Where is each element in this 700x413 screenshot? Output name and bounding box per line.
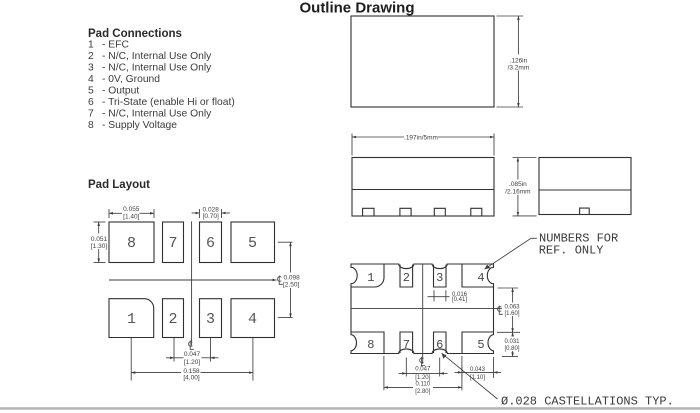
svg-text:0.055: 0.055 xyxy=(123,206,140,213)
svg-text:[1.40]: [1.40] xyxy=(123,213,139,220)
svg-text:2: 2 xyxy=(88,51,94,62)
svg-text:3: 3 xyxy=(436,271,443,285)
svg-text:0.063: 0.063 xyxy=(505,304,521,310)
svg-text:2: 2 xyxy=(168,311,177,328)
svg-text:[2.50]: [2.50] xyxy=(283,282,299,289)
svg-text:- EFC: - EFC xyxy=(102,40,129,51)
svg-text:8: 8 xyxy=(88,120,94,131)
svg-text:6: 6 xyxy=(206,235,215,252)
svg-text:2: 2 xyxy=(403,271,410,285)
svg-text:.197in/5mm: .197in/5mm xyxy=(404,135,438,142)
svg-text:1: 1 xyxy=(367,271,374,285)
svg-text:[1.30]: [1.30] xyxy=(91,243,107,250)
svg-text:0.047: 0.047 xyxy=(415,367,431,373)
svg-text:/2.16mm: /2.16mm xyxy=(505,188,530,195)
svg-text:[1.20]: [1.20] xyxy=(415,375,430,381)
svg-text:7: 7 xyxy=(88,109,94,120)
svg-text:3: 3 xyxy=(88,63,94,74)
svg-text:Ø.028 CASTELLATIONS TYP.: Ø.028 CASTELLATIONS TYP. xyxy=(501,395,674,409)
svg-text:- Output: - Output xyxy=(102,86,139,97)
svg-text:7: 7 xyxy=(168,235,177,252)
svg-text:/3.2mm: /3.2mm xyxy=(508,65,530,72)
svg-text:- N/C, Internal Use Only: - N/C, Internal Use Only xyxy=(102,63,212,74)
svg-text:[0.41]: [0.41] xyxy=(452,297,467,303)
svg-text:4: 4 xyxy=(477,271,484,285)
svg-text:7: 7 xyxy=(403,338,410,352)
svg-text:0.047: 0.047 xyxy=(184,351,201,358)
svg-text:3: 3 xyxy=(206,311,215,328)
svg-text:.085in: .085in xyxy=(509,181,527,188)
svg-text:Outline Drawing: Outline Drawing xyxy=(299,0,414,17)
svg-text:- Supply Voltage: - Supply Voltage xyxy=(102,120,177,131)
svg-text:8: 8 xyxy=(127,235,136,252)
svg-text:1: 1 xyxy=(127,311,136,328)
svg-text:- N/C, Internal Use Only: - N/C, Internal Use Only xyxy=(102,109,212,120)
svg-text:0.031: 0.031 xyxy=(505,339,521,345)
svg-text:4: 4 xyxy=(248,311,257,328)
svg-text:REF. ONLY: REF. ONLY xyxy=(539,244,604,258)
svg-text:[1.60]: [1.60] xyxy=(505,311,520,317)
svg-text:1: 1 xyxy=(88,40,94,51)
svg-text:6: 6 xyxy=(88,97,94,108)
svg-text:4: 4 xyxy=(88,74,94,85)
svg-text:- N/C, Internal Use Only: - N/C, Internal Use Only xyxy=(102,51,212,62)
svg-text:- Tri-State (enable Hi or floa: - Tri-State (enable Hi or float) xyxy=(102,97,235,108)
svg-text:0.043: 0.043 xyxy=(470,367,486,373)
svg-text:5: 5 xyxy=(248,235,257,252)
svg-text:Pad Connections: Pad Connections xyxy=(88,28,182,40)
svg-text:- 0V, Ground: - 0V, Ground xyxy=(102,74,160,85)
svg-text:5: 5 xyxy=(477,338,484,352)
svg-text:0.110: 0.110 xyxy=(416,382,431,388)
svg-text:8: 8 xyxy=(367,338,374,352)
svg-text:[2.80]: [2.80] xyxy=(415,389,430,395)
svg-text:0.098: 0.098 xyxy=(284,274,301,281)
svg-text:[1.20]: [1.20] xyxy=(184,359,200,366)
svg-text:[0.80]: [0.80] xyxy=(505,346,520,352)
svg-text:5: 5 xyxy=(88,86,94,97)
svg-text:[4.00]: [4.00] xyxy=(183,375,199,382)
svg-text:Pad Layout: Pad Layout xyxy=(88,179,150,191)
svg-text:[0.70]: [0.70] xyxy=(203,213,219,220)
svg-text:6: 6 xyxy=(436,338,443,352)
